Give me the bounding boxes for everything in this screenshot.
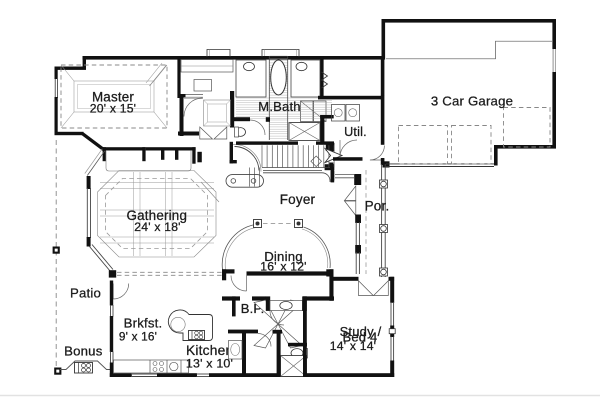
svg-text:Patio: Patio bbox=[70, 286, 101, 301]
svg-text:M.Bath: M.Bath bbox=[258, 99, 300, 114]
svg-text:Foyer: Foyer bbox=[280, 192, 316, 207]
svg-text:9' x 16': 9' x 16' bbox=[119, 330, 157, 344]
svg-text:Bonus: Bonus bbox=[64, 344, 103, 359]
svg-text:16' x 12': 16' x 12' bbox=[260, 259, 306, 273]
svg-text:24' x 18': 24' x 18' bbox=[134, 220, 180, 234]
svg-text:Por.: Por. bbox=[365, 199, 390, 214]
svg-text:20' x 15': 20' x 15' bbox=[90, 102, 136, 116]
svg-text:13' x 10': 13' x 10' bbox=[186, 357, 233, 371]
svg-text:Util.: Util. bbox=[344, 125, 367, 139]
svg-text:3 Car Garage: 3 Car Garage bbox=[431, 94, 513, 109]
svg-text:14' x 14': 14' x 14' bbox=[330, 339, 376, 353]
svg-text:Brkfst.: Brkfst. bbox=[124, 316, 163, 331]
